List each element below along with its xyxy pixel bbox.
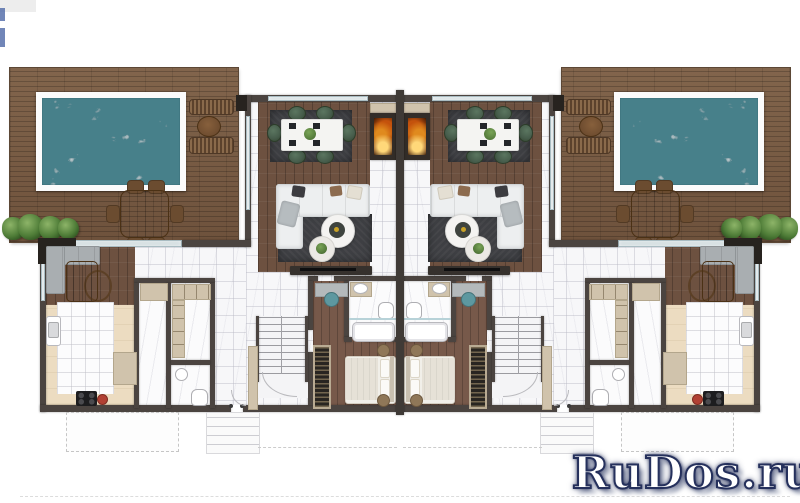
bathtub bbox=[352, 322, 395, 342]
toilet-icon bbox=[378, 302, 394, 319]
kitchen-counter bbox=[113, 352, 137, 385]
sofa-pillow bbox=[457, 185, 470, 196]
pantry-floor bbox=[634, 283, 661, 405]
shower-glass bbox=[349, 318, 396, 320]
place-setting bbox=[504, 123, 511, 129]
pouf-icon bbox=[377, 344, 390, 357]
bed-blanket bbox=[345, 358, 378, 400]
wall-bathroom-south bbox=[448, 337, 456, 342]
kitchen-tile-area bbox=[686, 302, 743, 394]
place-setting bbox=[289, 140, 296, 146]
deck-dining-table bbox=[120, 190, 169, 238]
patio-dashed-line bbox=[258, 447, 397, 450]
pouf-icon bbox=[377, 394, 390, 407]
wardrobe bbox=[313, 345, 331, 409]
place-setting bbox=[480, 140, 487, 146]
pool-side-table bbox=[579, 116, 603, 137]
dining-chair bbox=[518, 124, 533, 142]
wall-bedroom-north bbox=[404, 276, 466, 281]
side-table bbox=[309, 236, 335, 262]
watermark: RuDos.ru bbox=[588, 444, 800, 500]
desk-chair bbox=[461, 292, 476, 307]
toilet-icon bbox=[406, 302, 422, 319]
pantry-floor bbox=[139, 283, 166, 405]
closet-shelf bbox=[589, 284, 628, 300]
toilet-icon bbox=[191, 389, 208, 406]
closet-shelf bbox=[615, 300, 628, 358]
place-setting bbox=[289, 123, 296, 129]
wall-bedroom-west bbox=[308, 281, 313, 330]
scan-artifact bbox=[0, 28, 5, 47]
unit-left bbox=[0, 0, 400, 503]
deck-dining-table bbox=[631, 190, 680, 238]
table-plant-icon bbox=[484, 128, 496, 140]
sofa-pillow bbox=[437, 185, 454, 200]
nook-table bbox=[66, 261, 98, 302]
place-setting bbox=[504, 140, 511, 146]
sun-lounger bbox=[189, 99, 234, 115]
plant-icon bbox=[473, 243, 484, 254]
window-north bbox=[432, 96, 532, 101]
toilet-icon bbox=[592, 389, 609, 406]
fireplace-fire-icon bbox=[408, 118, 426, 155]
closet-shelf bbox=[172, 300, 185, 358]
dining-chair bbox=[466, 149, 484, 164]
fireplace-fire-icon bbox=[374, 118, 392, 155]
stair-stringer bbox=[518, 316, 519, 374]
deck-chair bbox=[106, 205, 120, 223]
wall-pantry-mid bbox=[629, 283, 634, 408]
wall-nook bbox=[182, 240, 251, 247]
closet-shelf bbox=[172, 284, 211, 300]
sun-lounger bbox=[566, 137, 611, 154]
wall-nook bbox=[549, 240, 618, 247]
dining-chair bbox=[494, 149, 512, 164]
watermark-text: RuDos.ru bbox=[572, 446, 800, 499]
party-wall bbox=[396, 90, 404, 415]
stair-treads bbox=[256, 316, 308, 374]
door-hinge-icon bbox=[567, 404, 571, 408]
bed-headboard bbox=[390, 356, 394, 402]
nook-sofa bbox=[735, 246, 754, 294]
wall-corner-block bbox=[553, 95, 564, 111]
bath-sink-icon bbox=[353, 283, 368, 294]
wall-pantry-left bbox=[661, 283, 666, 408]
stove-icon bbox=[703, 391, 724, 406]
place-setting bbox=[313, 140, 320, 146]
pantry-cabinet bbox=[140, 283, 168, 301]
pool-side-table bbox=[197, 116, 221, 137]
wardrobe bbox=[469, 345, 487, 409]
sofa-pillow bbox=[329, 185, 342, 196]
dining-chair bbox=[316, 149, 334, 164]
nook-sofa bbox=[46, 246, 65, 294]
bath-sink-icon bbox=[432, 283, 447, 294]
table-plant-icon bbox=[304, 128, 316, 140]
wall-closet-right bbox=[585, 283, 590, 408]
wall-wc-divider bbox=[171, 360, 210, 365]
pantry-cabinet bbox=[632, 283, 660, 301]
pool-water bbox=[42, 98, 180, 185]
sun-lounger bbox=[189, 137, 234, 154]
door-hinge-icon bbox=[229, 404, 233, 408]
tv-icon bbox=[300, 268, 356, 271]
deck-chair bbox=[680, 205, 694, 223]
plant-icon bbox=[721, 218, 742, 239]
stair-stringer bbox=[281, 316, 282, 374]
nook-table bbox=[702, 261, 734, 302]
patio-outline bbox=[66, 412, 179, 452]
tv-icon bbox=[444, 268, 500, 271]
wall-corner-black bbox=[753, 238, 762, 264]
sun-lounger bbox=[566, 99, 611, 115]
pool-water bbox=[620, 98, 758, 185]
pot-icon bbox=[97, 394, 108, 405]
place-setting bbox=[313, 123, 320, 129]
wall-closet-right bbox=[210, 283, 215, 408]
scan-artifact bbox=[0, 0, 36, 12]
scan-artifact bbox=[0, 8, 5, 21]
dining-chair bbox=[341, 124, 356, 142]
stove-icon bbox=[76, 391, 97, 406]
pouf-icon bbox=[410, 394, 423, 407]
decor-icon bbox=[461, 227, 466, 232]
stair-newel bbox=[248, 346, 258, 410]
desk-chair bbox=[324, 292, 339, 307]
sofa-pillow bbox=[346, 185, 363, 200]
sliding-door-deck bbox=[246, 116, 250, 210]
bed-pillow bbox=[380, 359, 390, 378]
sink-bowl-icon bbox=[741, 322, 752, 338]
deck-chair bbox=[616, 205, 630, 223]
kitchen-tile-area bbox=[57, 302, 114, 394]
window-north bbox=[268, 96, 368, 101]
wc-sink-icon bbox=[175, 368, 188, 381]
dining-chair bbox=[267, 124, 282, 142]
deck-chair bbox=[170, 205, 184, 223]
wall-wc-divider bbox=[590, 360, 629, 365]
wall-corner-block bbox=[236, 95, 247, 111]
plant-icon bbox=[58, 218, 79, 239]
sink-bowl-icon bbox=[48, 322, 59, 338]
stair-rail bbox=[305, 316, 308, 382]
floor-plan: RuDos.ru bbox=[0, 0, 800, 503]
stair-rail bbox=[492, 316, 495, 382]
pot-icon bbox=[692, 394, 703, 405]
side-table bbox=[465, 236, 491, 262]
kitchen-counter bbox=[663, 352, 687, 385]
dining-chair bbox=[288, 149, 306, 164]
wall-pantry-mid bbox=[166, 283, 171, 408]
wc-sink-icon bbox=[612, 368, 625, 381]
unit-right bbox=[400, 0, 800, 503]
bathtub bbox=[405, 322, 448, 342]
decor-icon bbox=[334, 227, 339, 232]
shower-glass bbox=[404, 318, 451, 320]
sliding-door-deck bbox=[550, 116, 554, 210]
bed-pillow bbox=[410, 359, 420, 378]
pouf-icon bbox=[410, 344, 423, 357]
bed-blanket bbox=[422, 358, 455, 400]
entry-steps bbox=[206, 412, 260, 454]
sofa-pillow bbox=[291, 185, 305, 198]
stair-newel bbox=[542, 346, 552, 410]
sofa-pillow bbox=[494, 185, 508, 198]
plant-icon bbox=[316, 243, 327, 254]
wall-pantry-left bbox=[134, 283, 139, 408]
wall-bathroom-south bbox=[344, 337, 352, 342]
patio-dashed-line bbox=[403, 447, 542, 450]
